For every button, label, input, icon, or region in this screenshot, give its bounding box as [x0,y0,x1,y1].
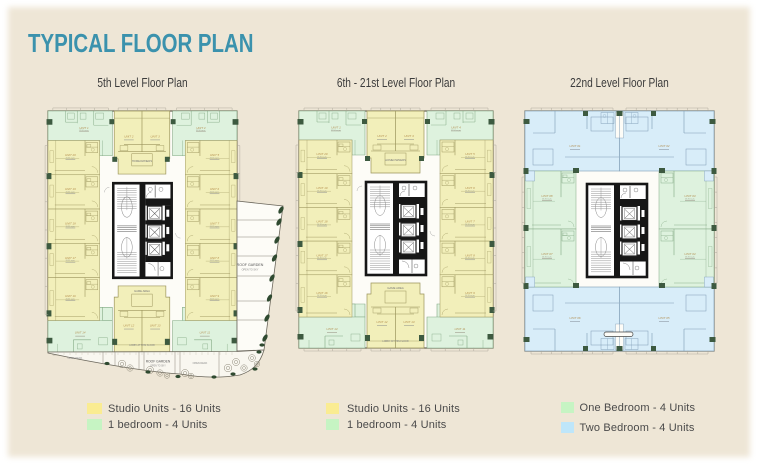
svg-text:UNIT 20: UNIT 20 [316,152,328,156]
svg-text:OPEN TO SKY: OPEN TO SKY [242,269,259,272]
svg-text:UNIT 18: UNIT 18 [65,221,76,225]
svg-text:UNIT 03: UNIT 03 [684,194,696,198]
svg-text:UNIT 20: UNIT 20 [65,153,76,157]
svg-text:UNIT 3: UNIT 3 [151,134,161,138]
svg-text:UNIT 1: UNIT 1 [79,126,89,130]
svg-text:HOMEOWNERS: HOMEOWNERS [385,158,406,162]
svg-text:UNIT 04: UNIT 04 [684,252,696,256]
svg-text:UNIT 7: UNIT 7 [210,221,220,225]
svg-text:GAME AREA: GAME AREA [134,289,150,293]
svg-text:UNIT 5: UNIT 5 [465,152,475,156]
svg-text:UNIT 13: UNIT 13 [150,324,161,328]
svg-text:UNIT 9: UNIT 9 [210,294,220,298]
svg-text:OPEN DECK: OPEN DECK [68,357,83,360]
svg-text:UNIT 2: UNIT 2 [377,134,387,138]
svg-text:UNIT 07: UNIT 07 [541,252,553,256]
svg-text:OPEN TO SKY: OPEN TO SKY [150,366,166,368]
svg-text:UNIT 19: UNIT 19 [65,187,76,191]
svg-text:UNIT 11: UNIT 11 [200,331,211,335]
svg-text:UNIT 12: UNIT 12 [123,324,134,328]
svg-text:UNIT 16: UNIT 16 [316,291,328,295]
svg-text:LOBBY AT THIS FLOOR: LOBBY AT THIS FLOOR [382,340,409,343]
svg-text:UNIT 2: UNIT 2 [124,134,134,138]
svg-text:ROOF GARDEN: ROOF GARDEN [146,360,171,364]
svg-text:UNIT 17: UNIT 17 [316,253,328,257]
svg-text:UNIT 14: UNIT 14 [326,327,338,331]
svg-text:UNIT 08: UNIT 08 [541,194,553,198]
svg-text:UNIT 8: UNIT 8 [210,256,220,260]
svg-text:UNIT 13: UNIT 13 [403,320,415,324]
svg-text:UNIT 9: UNIT 9 [465,291,475,295]
svg-text:UNIT 14: UNIT 14 [75,331,86,335]
svg-text:UNIT 4: UNIT 4 [451,126,461,130]
svg-text:UNIT 01: UNIT 01 [569,144,581,148]
svg-text:UNIT 16: UNIT 16 [65,294,76,298]
svg-text:UNIT 8: UNIT 8 [465,253,475,257]
svg-text:UNIT 11: UNIT 11 [455,327,466,331]
svg-text:UNIT 12: UNIT 12 [376,320,388,324]
svg-text:UNIT 05: UNIT 05 [658,316,670,320]
svg-text:UNIT 6: UNIT 6 [465,186,475,190]
svg-text:UNIT 7: UNIT 7 [465,220,475,224]
svg-text:LOBBY AT THIS FLOOR: LOBBY AT THIS FLOOR [129,344,155,347]
svg-text:UNIT 18: UNIT 18 [316,220,328,224]
svg-text:UNIT 4: UNIT 4 [196,126,206,130]
svg-text:UNIT 1: UNIT 1 [331,126,341,130]
svg-text:UNIT 19: UNIT 19 [316,186,328,190]
svg-text:UNIT 5: UNIT 5 [210,153,220,157]
svg-text:HOMEOWNERS: HOMEOWNERS [132,159,152,163]
svg-text:UNIT 06: UNIT 06 [569,316,581,320]
svg-text:UNIT 6: UNIT 6 [210,187,220,191]
svg-text:OPEN DECK: OPEN DECK [193,362,208,365]
svg-text:GAME AREA: GAME AREA [387,286,404,290]
svg-text:UNIT 17: UNIT 17 [65,256,76,260]
svg-text:ROOF GARDEN: ROOF GARDEN [237,263,264,267]
svg-text:UNIT 02: UNIT 02 [658,144,670,148]
svg-text:UNIT 3: UNIT 3 [404,134,414,138]
